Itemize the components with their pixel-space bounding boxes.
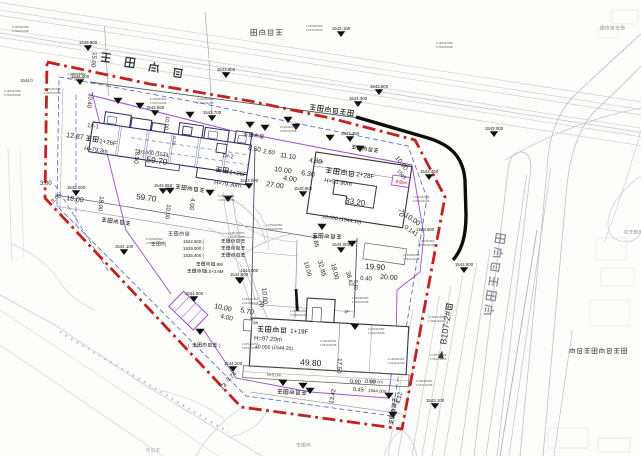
svg-text:4.00: 4.00	[220, 313, 234, 323]
svg-text:1543.900: 1543.900	[370, 84, 389, 89]
svg-text:1=543.6236: 1=543.6236	[290, 313, 307, 317]
svg-text:N+5.0m: N+5.0m	[267, 372, 282, 378]
svg-text:1543.450: 1543.450	[420, 169, 439, 174]
svg-text:1543.950: 1543.950	[154, 183, 173, 188]
svg-text:1544.000: 1544.000	[240, 268, 259, 273]
svg-text:18.00: 18.00	[96, 196, 104, 212]
svg-text:5.70: 5.70	[240, 307, 255, 317]
svg-text:1=543.6236: 1=543.6236	[44, 91, 61, 95]
svg-text:1.9M: 1.9M	[213, 262, 223, 267]
svg-text:1543.000: 1543.000	[485, 126, 504, 131]
svg-text:): )	[219, 343, 221, 348]
svg-text:1=543.6236: 1=543.6236	[4, 93, 21, 97]
svg-text:1=543.6236: 1=543.6236	[430, 357, 447, 361]
svg-text:1544.000: 1544.000	[332, 242, 351, 247]
svg-text:1=543.6236: 1=543.6236	[418, 243, 435, 247]
svg-text:12.87: 12.87	[66, 132, 84, 141]
svg-text:1=543.6236: 1=543.6236	[388, 361, 405, 365]
svg-text:0.00: 0.00	[365, 379, 376, 386]
svg-text:1=543.6236: 1=543.6236	[403, 257, 420, 261]
svg-text:4.00: 4.00	[283, 175, 298, 184]
svg-text:1=543.6236: 1=543.6236	[416, 383, 433, 387]
svg-text:1544.0: 1544.0	[20, 78, 33, 83]
svg-text:6.30: 6.30	[301, 170, 316, 179]
svg-text:1535.400 (: 1535.400 (	[183, 253, 205, 258]
svg-text:1543.100: 1543.100	[426, 398, 445, 403]
svg-text:1=543.6236: 1=543.6236	[242, 346, 259, 350]
svg-text:0.40: 0.40	[360, 276, 373, 283]
svg-text:1544.000: 1544.000	[185, 291, 204, 296]
svg-text:20.00: 20.00	[380, 274, 398, 282]
svg-text:1+19F: 1+19F	[290, 328, 309, 336]
svg-text:1543.000: 1543.000	[67, 185, 86, 190]
svg-text:1=543.6236: 1=543.6236	[413, 199, 430, 203]
svg-text:3#: 3#	[253, 320, 259, 325]
svg-text:1F: 1F	[344, 309, 350, 314]
svg-text:1#4=4.4m: 1#4=4.4m	[70, 72, 86, 76]
svg-text:1=543.6236: 1=543.6236	[218, 198, 235, 202]
svg-text:1=543.6236: 1=543.6236	[352, 300, 369, 304]
svg-text:17.50: 17.50	[335, 358, 343, 374]
svg-text:4.80: 4.80	[309, 157, 323, 166]
svg-text:18.00: 18.00	[66, 195, 84, 204]
svg-text:0.45: 0.45	[353, 387, 364, 394]
svg-text:1=543.6236: 1=543.6236	[280, 129, 297, 133]
svg-text:1544.100: 1544.100	[115, 244, 134, 249]
svg-text:3.00: 3.00	[40, 181, 52, 187]
svg-text:1543.500: 1543.500	[416, 227, 435, 232]
svg-text:1543.000: 1543.000	[240, 178, 259, 183]
svg-text:3.74: 3.74	[225, 371, 238, 384]
svg-text:27.00: 27.00	[266, 181, 284, 190]
svg-text:1=543.6236: 1=543.6236	[266, 227, 283, 231]
svg-text:1542.500 (: 1542.500 (	[183, 239, 205, 244]
svg-text:4.00: 4.00	[188, 198, 195, 211]
svg-text:1539.000 (: 1539.000 (	[183, 246, 205, 251]
svg-text:19.90: 19.90	[365, 262, 386, 272]
svg-text:1=543.6236: 1=543.6236	[428, 319, 445, 323]
svg-text:1=543.6236: 1=543.6236	[368, 331, 385, 335]
svg-text:1=543.6236: 1=543.6236	[68, 76, 85, 80]
svg-text:1543.900: 1543.900	[79, 40, 98, 45]
svg-text:10.00: 10.00	[302, 261, 312, 278]
svg-text:1543.650: 1543.650	[146, 105, 165, 110]
svg-text:2.60: 2.60	[263, 149, 276, 157]
svg-text:1=543.6236: 1=543.6236	[242, 301, 259, 305]
svg-text:1544.200: 1544.200	[224, 361, 243, 366]
svg-text:10.00: 10.00	[162, 116, 170, 130]
svg-text:1=543.6236: 1=543.6236	[146, 241, 163, 245]
svg-text:3.5+3.6M: 3.5+3.6M	[205, 269, 224, 274]
svg-text:1=543.6236: 1=543.6236	[306, 28, 323, 32]
svg-text:1543.600: 1543.600	[217, 67, 236, 72]
svg-text:32.85: 32.85	[316, 260, 327, 278]
svg-text:(: (	[188, 343, 190, 348]
svg-text:10.00: 10.00	[214, 303, 233, 314]
svg-text:1543.500: 1543.500	[455, 262, 474, 267]
svg-text:10.00: 10.00	[163, 204, 171, 220]
svg-text:1544.000: 1544.000	[368, 388, 387, 394]
svg-text:49.80: 49.80	[300, 357, 322, 368]
svg-text:1=543.6236: 1=543.6236	[228, 235, 245, 239]
svg-text:10.00: 10.00	[260, 288, 268, 305]
svg-text:1=543.6236: 1=543.6236	[150, 101, 167, 105]
svg-text:1=543.6236: 1=543.6236	[197, 101, 214, 105]
svg-text:1543.100: 1543.100	[332, 26, 351, 31]
svg-text:1#-1: 1#-1	[87, 123, 99, 131]
svg-text:1543.700: 1543.700	[203, 110, 222, 115]
svg-text:1=543.6236: 1=543.6236	[12, 29, 29, 33]
svg-text:11.10: 11.10	[280, 152, 297, 161]
svg-text:0.10: 0.10	[352, 280, 358, 290]
svg-text:18.00: 18.00	[329, 263, 340, 281]
svg-text:59.70: 59.70	[136, 192, 158, 204]
svg-text:15.00: 15.00	[89, 52, 97, 68]
svg-text:4.12: 4.12	[396, 391, 404, 404]
svg-text:0.90: 0.90	[350, 379, 361, 386]
svg-text:1543.300: 1543.300	[349, 96, 368, 101]
svg-text:13.42: 13.42	[329, 388, 338, 404]
svg-text:1543.900: 1543.900	[294, 186, 313, 191]
svg-text:1=543.6236: 1=543.6236	[320, 343, 337, 347]
svg-text:1543.450: 1543.450	[341, 131, 360, 136]
svg-text:10.40: 10.40	[85, 93, 93, 109]
svg-text:1=543.6236: 1=543.6236	[436, 45, 453, 49]
